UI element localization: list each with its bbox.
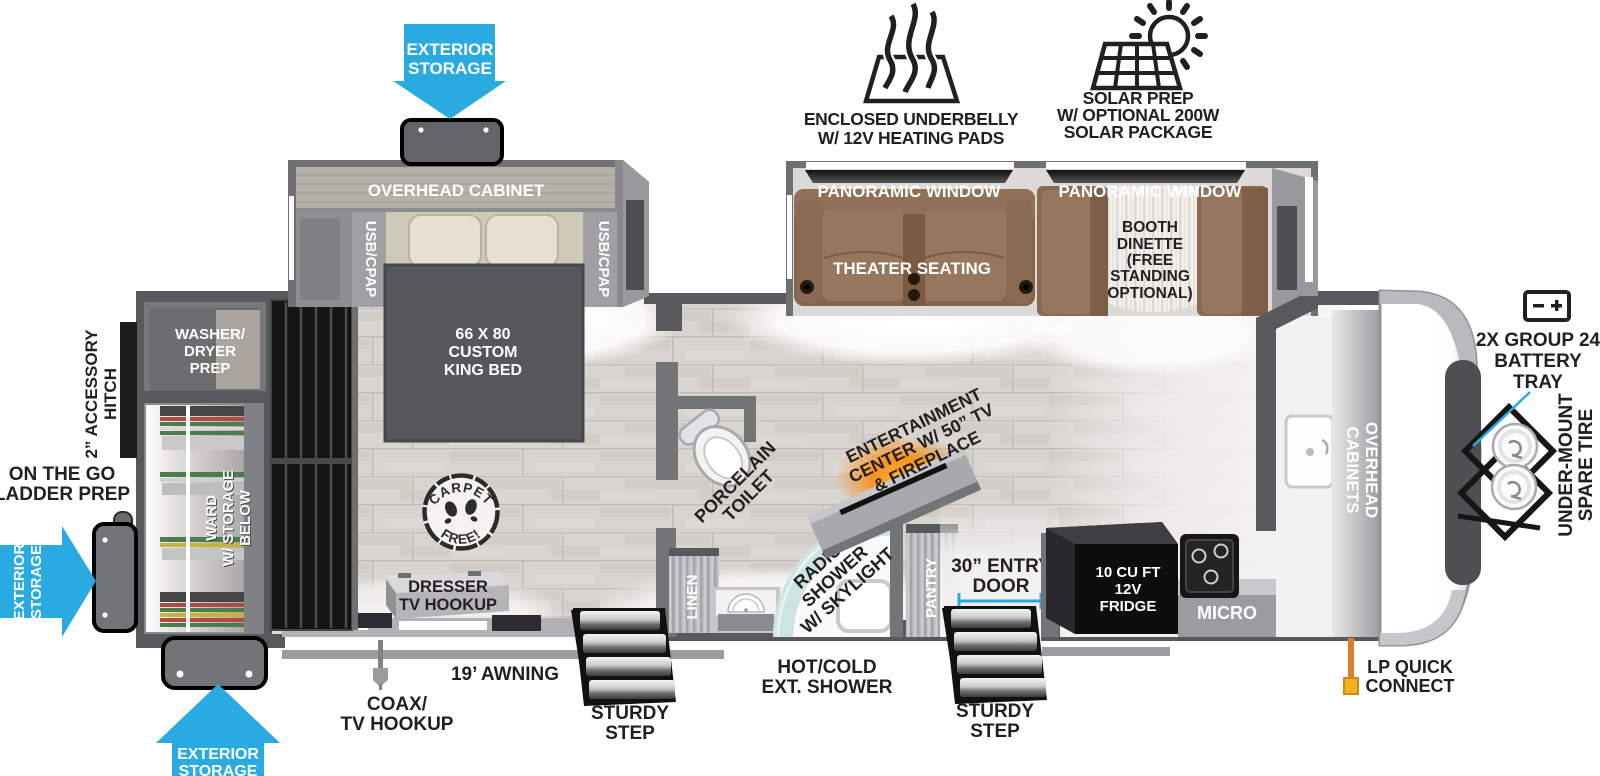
svg-text:STORAGE: STORAGE xyxy=(179,763,258,776)
svg-text:W/ STORAGE: W/ STORAGE xyxy=(220,470,237,566)
svg-text:ENCLOSED UNDERBELLY: ENCLOSED UNDERBELLY xyxy=(804,109,1019,129)
svg-text:DRYER: DRYER xyxy=(184,343,236,360)
svg-text:EXTERIOR: EXTERIOR xyxy=(177,746,259,763)
svg-text:STANDING: STANDING xyxy=(1110,268,1190,285)
svg-text:EXT. SHOWER: EXT. SHOWER xyxy=(762,677,893,698)
svg-text:EXTERIOR: EXTERIOR xyxy=(407,40,494,59)
svg-text:TV HOOKUP: TV HOOKUP xyxy=(399,596,497,614)
svg-text:19’ AWNING: 19’ AWNING xyxy=(451,664,559,685)
svg-text:MICRO: MICRO xyxy=(1197,603,1257,623)
svg-text:LADDER PREP: LADDER PREP xyxy=(0,484,130,505)
svg-text:HOT/COLD: HOT/COLD xyxy=(777,657,876,678)
svg-text:PANTRY: PANTRY xyxy=(923,558,940,618)
svg-text:30” ENTRY: 30” ENTRY xyxy=(951,556,1051,577)
svg-text:PANORAMIC WINDOW: PANORAMIC WINDOW xyxy=(1059,182,1243,201)
svg-text:STURDY: STURDY xyxy=(591,703,669,724)
svg-text:SPARE TIRE: SPARE TIRE xyxy=(1576,409,1597,522)
svg-text:BOOTH: BOOTH xyxy=(1122,219,1178,236)
svg-text:LINEN: LINEN xyxy=(684,575,701,620)
svg-text:EXTERIORSTORAGE: EXTERIORSTORAGE xyxy=(11,543,45,620)
svg-text:CONNECT: CONNECT xyxy=(1366,676,1455,696)
svg-text:UNDER-MOUNT: UNDER-MOUNT xyxy=(1556,393,1577,537)
svg-text:KING BED: KING BED xyxy=(444,362,522,379)
svg-text:CUSTOM: CUSTOM xyxy=(448,344,517,361)
svg-text:TRAY: TRAY xyxy=(1513,372,1563,393)
svg-text:10 CU FT: 10 CU FT xyxy=(1095,564,1160,581)
svg-text:(FREE: (FREE xyxy=(1127,252,1174,269)
svg-text:12V: 12V xyxy=(1115,581,1142,598)
svg-text:STEP: STEP xyxy=(970,721,1020,742)
svg-text:DOOR: DOOR xyxy=(973,576,1030,597)
svg-text:2X GROUP 24: 2X GROUP 24 xyxy=(1476,330,1600,351)
svg-text:STORAGE: STORAGE xyxy=(408,59,492,78)
svg-text:USB/CPAP: USB/CPAP xyxy=(362,221,379,297)
svg-text:OVERHEAD: OVERHEAD xyxy=(1362,422,1381,518)
svg-text:66 X 80: 66 X 80 xyxy=(455,326,510,343)
svg-text:USB/CPAP: USB/CPAP xyxy=(595,221,612,297)
svg-text:COAX/: COAX/ xyxy=(367,694,428,715)
svg-text:BATTERY: BATTERY xyxy=(1494,351,1582,372)
svg-text:TV HOOKUP: TV HOOKUP xyxy=(341,714,454,735)
svg-text:FRIDGE: FRIDGE xyxy=(1100,598,1157,615)
svg-text:ON THE GO: ON THE GO xyxy=(9,464,116,485)
svg-text:DINETTE: DINETTE xyxy=(1117,236,1183,253)
svg-text:LP QUICK: LP QUICK xyxy=(1367,657,1453,677)
svg-text:STURDY: STURDY xyxy=(956,701,1034,722)
svg-text:OPTIONAL): OPTIONAL) xyxy=(1107,285,1192,302)
svg-text:THEATER SEATING: THEATER SEATING xyxy=(833,259,991,278)
svg-text:PREP: PREP xyxy=(190,360,231,377)
svg-text:CABINETS: CABINETS xyxy=(1343,427,1362,514)
svg-text:OVERHEAD CABINET: OVERHEAD CABINET xyxy=(368,181,545,200)
svg-text:2” ACCESSORY: 2” ACCESSORY xyxy=(82,329,101,459)
svg-text:STEP: STEP xyxy=(605,723,655,744)
svg-text:WARD: WARD xyxy=(203,495,220,541)
svg-text:WASHER/: WASHER/ xyxy=(175,326,246,343)
svg-text:SOLAR PACKAGE: SOLAR PACKAGE xyxy=(1064,122,1212,142)
svg-text:BELOW: BELOW xyxy=(237,489,254,546)
svg-text:W/ 12V HEATING PADS: W/ 12V HEATING PADS xyxy=(818,128,1004,148)
svg-text:HITCH: HITCH xyxy=(101,368,120,420)
svg-text:DRESSER: DRESSER xyxy=(408,578,488,596)
svg-text:PANORAMIC WINDOW: PANORAMIC WINDOW xyxy=(818,182,1002,201)
